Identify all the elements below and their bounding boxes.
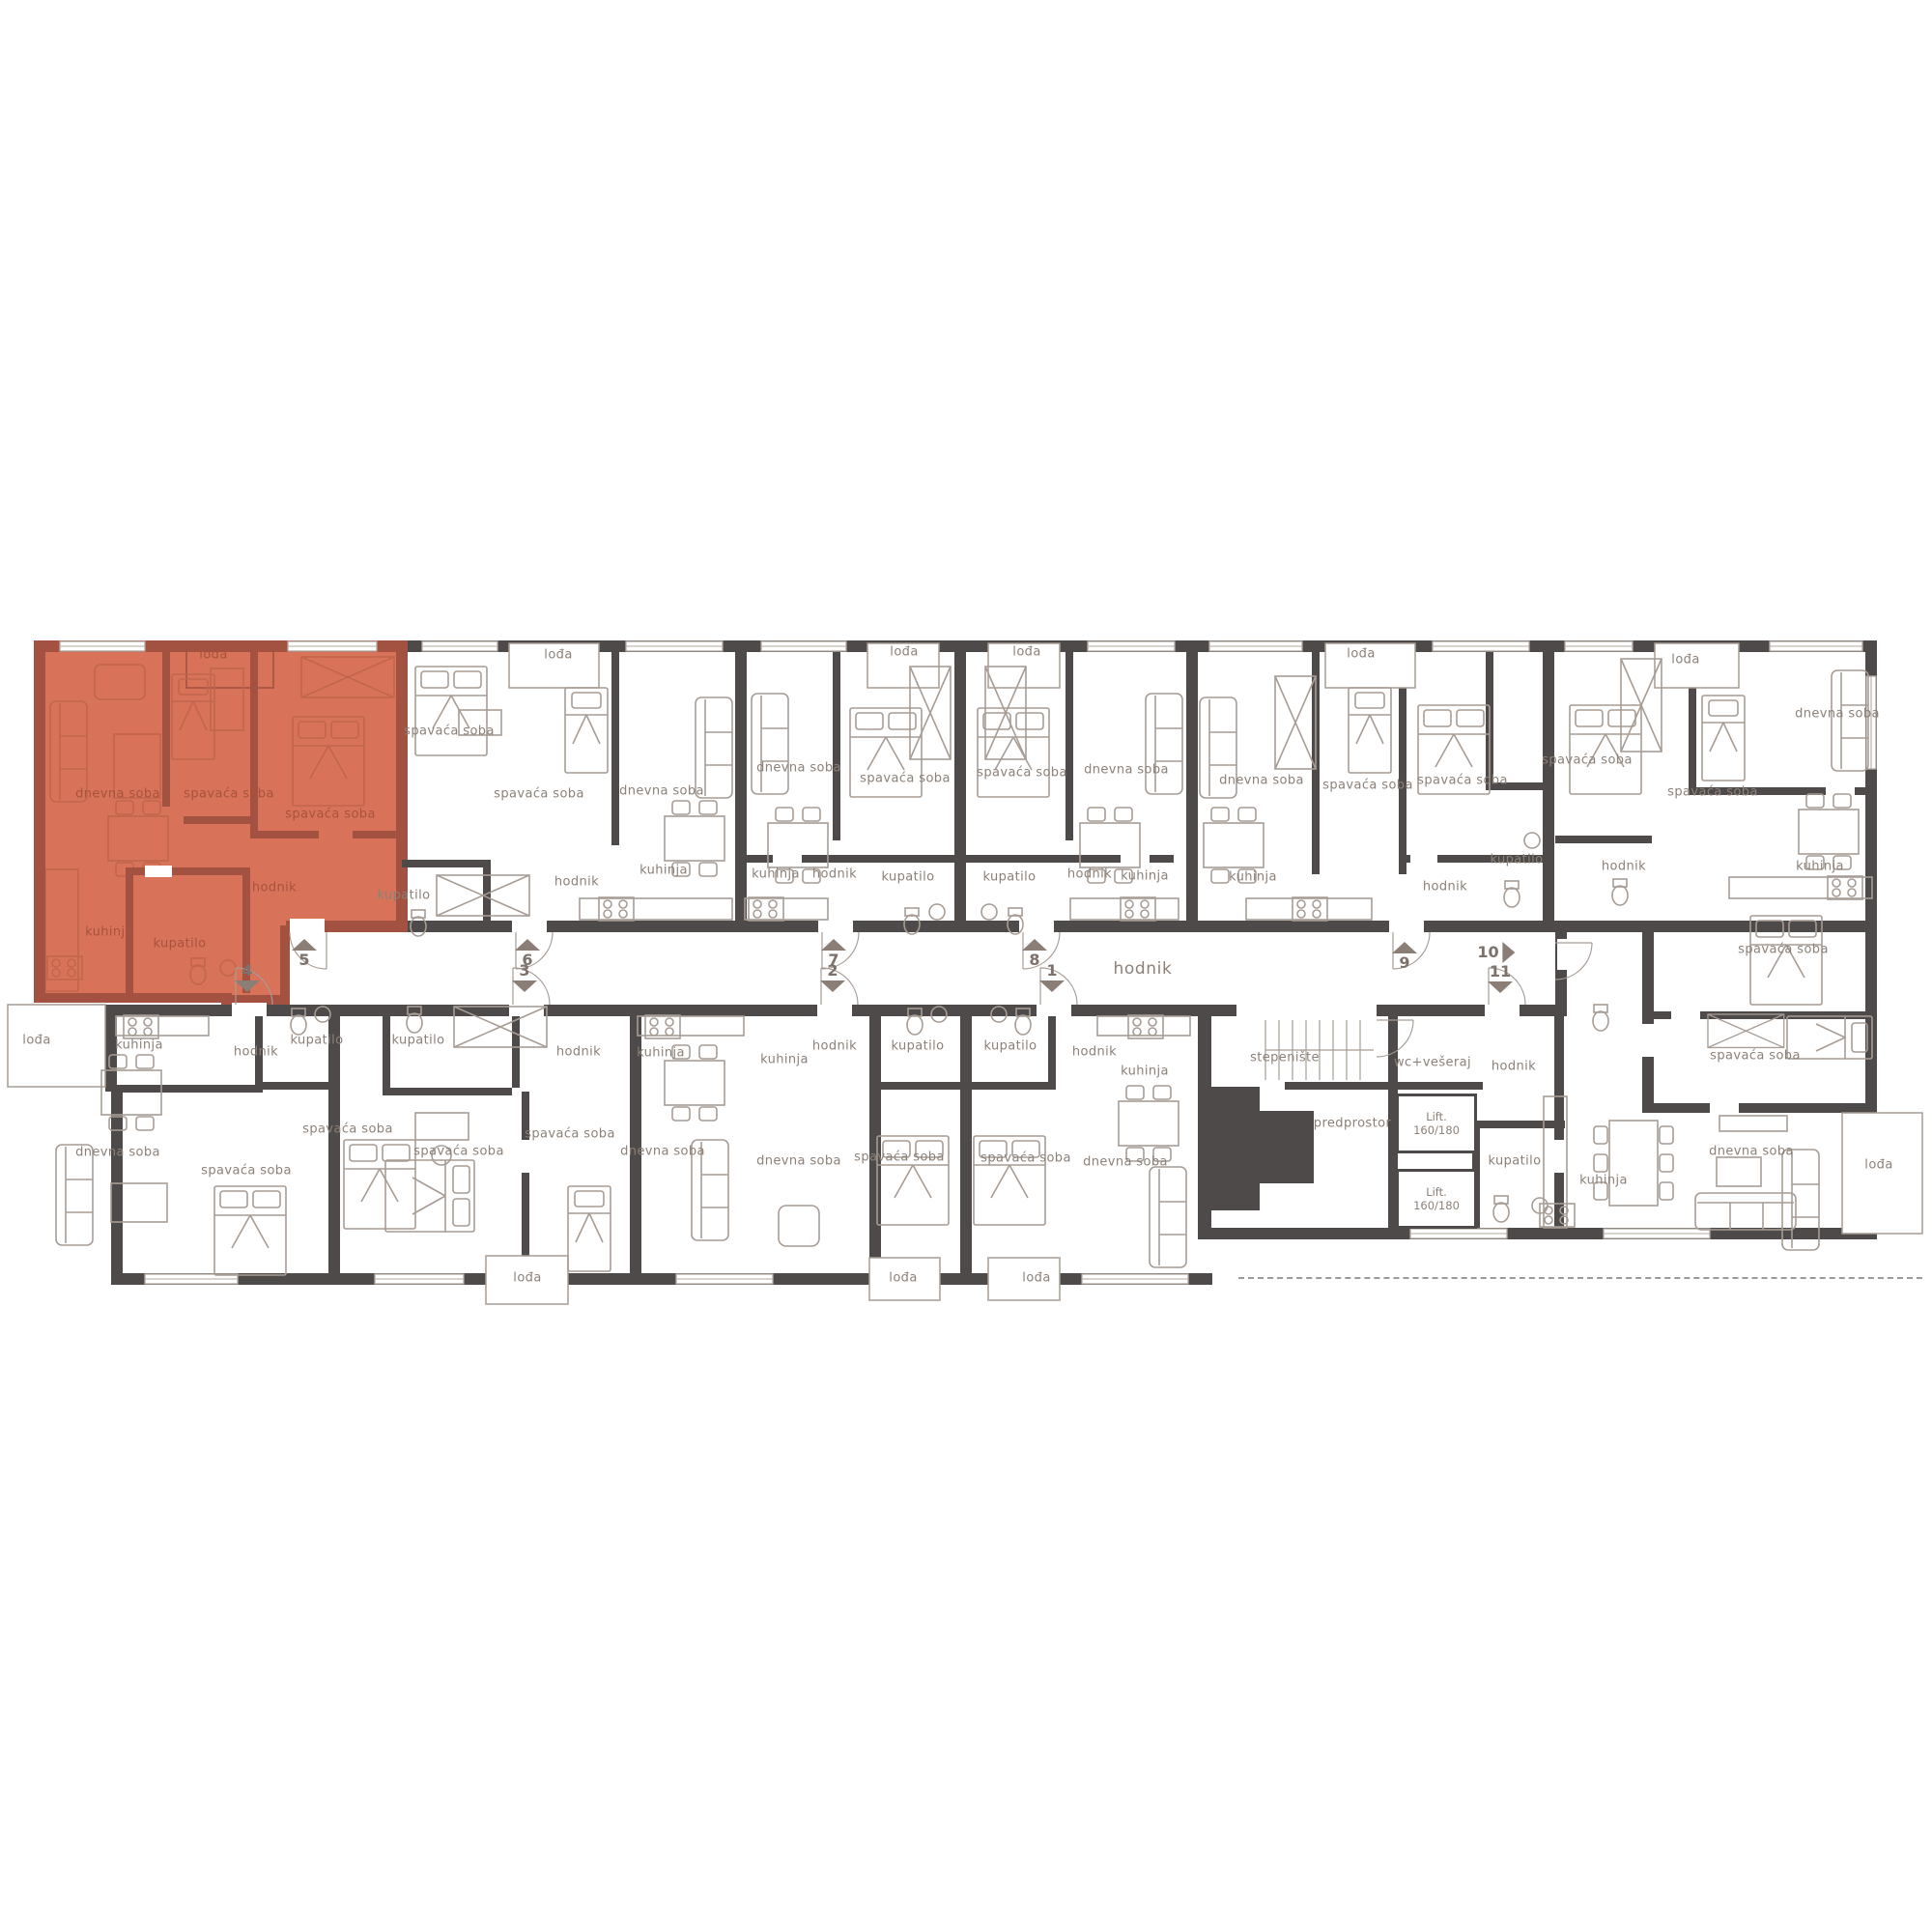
entrance-arrow-down-icon — [820, 980, 845, 992]
unit-number: 5 — [298, 952, 309, 968]
room-label: kupatilo — [153, 937, 206, 952]
room-label: kuhinja — [115, 1038, 163, 1053]
unit-number: 11 — [1490, 964, 1511, 980]
room-label: lođa — [513, 1271, 541, 1286]
room-label: lođa — [1671, 653, 1699, 668]
entrance-arrow-down-icon — [235, 980, 260, 992]
room-label: lođa — [199, 648, 227, 663]
unit-entrance-marker-2[interactable]: 2 — [820, 963, 845, 992]
entrance-arrow-up-icon — [292, 939, 317, 951]
unit-entrance-marker-9[interactable]: 9 — [1392, 942, 1417, 971]
room-label: hodnik — [252, 881, 297, 895]
room-label: kuhinja — [1121, 1065, 1169, 1079]
room-label: dnevna soba — [1219, 774, 1304, 788]
room-label: spavaća soba — [977, 766, 1067, 781]
room-label: kupatilo — [377, 889, 430, 903]
room-label: kuhinja — [637, 1046, 685, 1061]
room-label: lođa — [1012, 645, 1040, 660]
unit-number: 8 — [1029, 952, 1039, 968]
room-label: kuhinja — [85, 925, 133, 940]
room-label: hodnik — [812, 867, 857, 882]
unit-number: 2 — [827, 963, 838, 979]
room-label: kuhinja — [760, 1053, 809, 1067]
entrance-arrow-up-icon — [1392, 942, 1417, 953]
room-label: dnevna soba — [1795, 707, 1880, 722]
unit-entrance-marker-3[interactable]: 3 — [512, 963, 537, 992]
room-label: kupatilo — [982, 870, 1036, 885]
room-label: kuhinja — [1229, 870, 1277, 885]
room-label: spavaća soba — [285, 808, 376, 822]
entrance-arrow-down-icon — [1039, 980, 1065, 992]
room-label: spavaća soba — [494, 787, 584, 802]
labels-layer: hodnik lođadnevna sobaspavaća sobaspavać… — [0, 0, 1932, 1932]
room-label: hodnik — [554, 875, 599, 890]
room-label: lođa — [1864, 1158, 1892, 1173]
room-label: spavaća soba — [1738, 943, 1829, 957]
room-label: spavaća soba — [854, 1151, 945, 1165]
room-label: hodnik — [1067, 867, 1112, 882]
unit-number: 4 — [241, 963, 252, 979]
room-label: kupatilo — [1488, 1154, 1541, 1169]
room-label: hodnik — [234, 1045, 278, 1060]
room-label: lođa — [890, 645, 918, 660]
unit-entrance-marker-5[interactable]: 5 — [292, 939, 317, 968]
room-label: spavaća soba — [1710, 1049, 1801, 1064]
room-label: lođa — [1347, 647, 1375, 662]
room-label: hodnik — [812, 1039, 857, 1054]
room-label: lođa — [544, 648, 572, 663]
unit-number: 1 — [1046, 963, 1057, 979]
room-label: spavaća soba — [1322, 779, 1413, 793]
room-label: dnevna soba — [756, 761, 841, 776]
room-label: kuhinja — [1579, 1174, 1628, 1188]
room-label: spavaća soba — [525, 1127, 615, 1142]
unit-entrance-marker-11[interactable]: 11 — [1488, 964, 1513, 993]
room-label: dnevna soba — [619, 784, 704, 799]
entrance-arrow-down-icon — [512, 980, 537, 992]
entrance-arrow-up-icon — [821, 939, 846, 951]
unit-entrance-marker-4[interactable]: 4 — [235, 963, 260, 992]
room-label: hodnik — [556, 1045, 601, 1060]
room-label: dnevna soba — [75, 787, 160, 802]
room-label: dnevna soba — [620, 1145, 705, 1159]
room-label: kuhinja — [1796, 860, 1844, 874]
room-label: kupatilo — [983, 1039, 1037, 1054]
unit-entrance-marker-10[interactable]: 10 — [1477, 942, 1515, 963]
room-label: spavaća soba — [413, 1145, 504, 1159]
unit-number: 9 — [1399, 955, 1409, 971]
room-label: dnevna soba — [1084, 763, 1169, 778]
unit-number: 3 — [519, 963, 529, 979]
room-label: lođa — [22, 1034, 50, 1048]
room-label: lođa — [1022, 1271, 1050, 1286]
room-label: spavaća soba — [1542, 753, 1633, 768]
room-label: kuhinja — [639, 864, 688, 878]
entrance-arrow-down-icon — [1488, 981, 1513, 993]
room-label: kuhinja — [752, 867, 800, 882]
room-label: kupatilo — [290, 1034, 343, 1048]
room-label: spavaća soba — [860, 772, 951, 786]
unit-entrance-marker-1[interactable]: 1 — [1039, 963, 1065, 992]
room-label: dnevna soba — [1709, 1145, 1794, 1159]
room-label: hodnik — [1423, 880, 1467, 895]
room-label: wc+vešeraj — [1394, 1056, 1471, 1070]
room-label: stepenište — [1250, 1051, 1320, 1065]
entrance-arrow-right-icon — [1503, 942, 1516, 963]
floor-plan: Lift. 160/180 Lift. 160/180 hodnik lođad… — [0, 0, 1932, 1932]
room-label: spavaća soba — [184, 787, 274, 802]
room-label: spavaća soba — [1417, 774, 1508, 788]
room-label: kupatilo — [881, 870, 934, 885]
room-label: spavaća soba — [980, 1151, 1071, 1166]
room-label: dnevna soba — [756, 1154, 841, 1169]
entrance-arrow-up-icon — [515, 939, 540, 951]
room-label: dnevna soba — [75, 1146, 160, 1160]
entrance-arrow-up-icon — [1022, 939, 1047, 951]
room-label: spavaća soba — [302, 1122, 393, 1137]
room-label: hodnik — [1602, 860, 1646, 874]
room-label: kupatilo — [891, 1039, 944, 1054]
room-label: spavaća soba — [1667, 785, 1758, 800]
room-label: kuhinja — [1121, 869, 1169, 884]
unit-number: 10 — [1477, 945, 1498, 960]
room-label: kupatilo — [391, 1034, 444, 1048]
corridor-label: hodnik — [1114, 959, 1173, 979]
room-label: spavaća soba — [404, 724, 495, 739]
room-label: lođa — [889, 1271, 917, 1286]
room-label: hodnik — [1492, 1060, 1536, 1074]
room-label: kupatilo — [1490, 853, 1543, 867]
room-label: spavaća soba — [201, 1164, 292, 1179]
room-label: hodnik — [1072, 1045, 1117, 1060]
room-label: predprostor — [1314, 1117, 1391, 1131]
room-label: dnevna soba — [1083, 1155, 1168, 1170]
